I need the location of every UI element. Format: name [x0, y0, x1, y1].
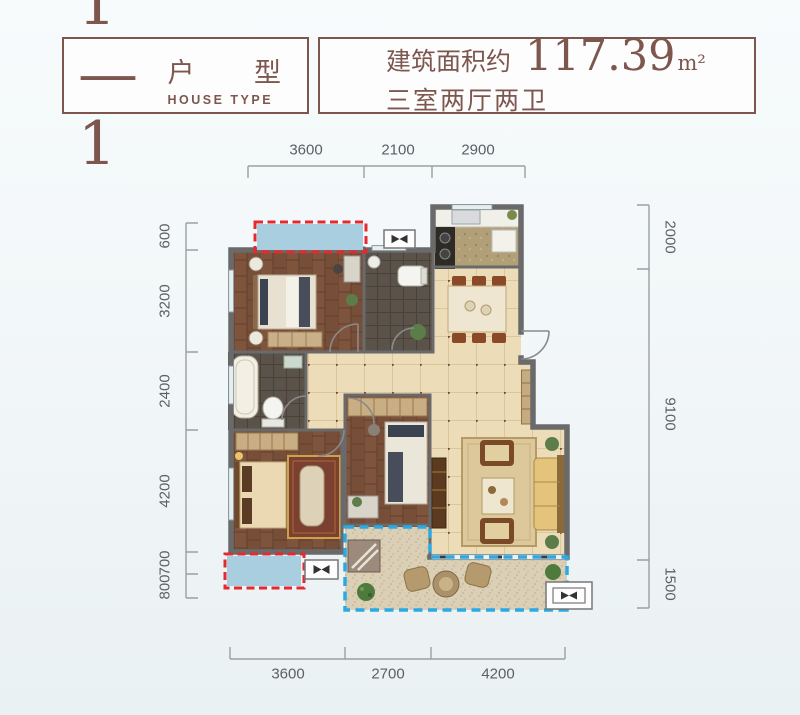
dim-bottom-0: 3600 [271, 666, 304, 683]
dim-top-2: 2900 [461, 142, 494, 159]
dim-right-1: 9100 [662, 397, 679, 430]
dim-line-right [637, 205, 649, 608]
dim-left-0: 600 [157, 223, 174, 248]
bay-window-bottom [225, 554, 304, 588]
dim-left-3: 4200 [157, 474, 174, 507]
dim-line-top [248, 166, 525, 178]
dim-left-2: 2400 [157, 374, 174, 407]
window-bathroom-1 [229, 366, 234, 404]
dim-line-left [186, 223, 198, 598]
window-bedroom-2 [229, 270, 234, 312]
dim-left-4: 700 [157, 550, 174, 575]
floorplan-page: 1—1 户 型 HOUSE TYPE 建筑面积约 117.39 m² 三室两厅两… [0, 0, 800, 715]
dim-right-0: 2000 [662, 220, 679, 253]
dim-top-0: 3600 [289, 142, 322, 159]
window-master [229, 468, 234, 520]
bay-window-top [255, 222, 366, 252]
dim-left-5: 800 [157, 574, 174, 599]
dim-bottom-1: 2700 [371, 666, 404, 683]
dim-line-bottom [230, 647, 565, 659]
ac-unit-bottom-right [546, 582, 592, 609]
dim-left-1: 3200 [157, 284, 174, 317]
ac-unit-top [384, 230, 415, 248]
entry-door [521, 331, 549, 359]
dim-bottom-2: 4200 [481, 666, 514, 683]
window-kitchen [452, 205, 492, 210]
dim-right-2: 1500 [662, 567, 679, 600]
dim-top-1: 2100 [381, 142, 414, 159]
floorplan-graphic [0, 0, 800, 715]
ac-unit-bottom-left [305, 560, 338, 579]
